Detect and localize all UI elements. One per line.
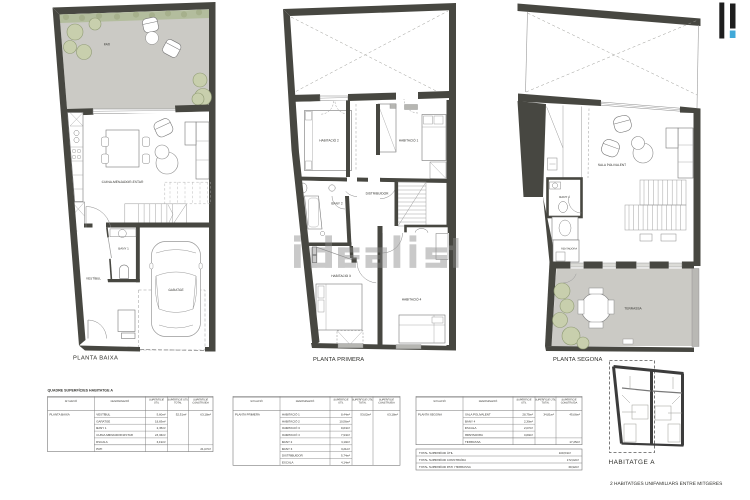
svg-text:172,02m²: 172,02m² [567,458,579,462]
svg-text:PLANTA SEGONA: PLANTA SEGONA [418,413,442,417]
svg-text:HABITACIÓ 1: HABITACIÓ 1 [282,413,300,417]
svg-text:63,18m²: 63,18m² [200,413,211,417]
svg-text:DISTRIBUIDOR: DISTRIBUIDOR [366,192,390,196]
svg-text:5,74m²: 5,74m² [341,454,350,458]
svg-text:BANY 4: BANY 4 [465,419,476,423]
svg-text:DENOMINACIÓ: DENOMINACIÓ [479,399,498,403]
svg-text:BANY 1: BANY 1 [118,247,129,251]
svg-text:ESCALA: ESCALA [465,426,476,430]
svg-text:52,51m²: 52,51m² [176,413,187,417]
svg-text:ÚTIL: ÚTIL [154,401,160,405]
svg-text:SITUACIÓ: SITUACIÓ [250,399,262,403]
svg-text:RENTADORA: RENTADORA [561,248,577,251]
svg-text:HABITACIÓ 2: HABITACIÓ 2 [282,419,300,423]
svg-text:45,66m²: 45,66m² [569,413,580,417]
svg-text:CONSTRUÏDA: CONSTRUÏDA [561,401,578,405]
svg-text:18,65m²: 18,65m² [155,419,166,423]
svg-text:BANY 2: BANY 2 [331,202,343,206]
svg-text:63,18m²: 63,18m² [387,413,398,417]
svg-text:TOTAL SUPERFÍCIE CONSTRUÏDA: TOTAL SUPERFÍCIE CONSTRUÏDA [419,458,466,462]
svg-text:DISTRIBUIDOR: DISTRIBUIDOR [282,454,303,458]
svg-text:CUINA-MENJADOR-ESTAR: CUINA-MENJADOR-ESTAR [102,180,144,184]
svg-text:24,33m²: 24,33m² [155,433,166,437]
svg-text:SALA POLIVALENT: SALA POLIVALENT [598,163,626,167]
svg-text:HABITACIÓ 2: HABITACIÓ 2 [319,139,339,143]
svg-text:DENOMINACIÓ: DENOMINACIÓ [296,399,315,403]
svg-text:21,67m²: 21,67m² [200,447,211,451]
svg-text:34,81m²: 34,81m² [543,413,554,417]
svg-text:BANY 1: BANY 1 [96,426,107,430]
svg-text:CONSTRUÏDA: CONSTRUÏDA [378,401,395,405]
svg-text:2,30m²: 2,30m² [524,419,533,423]
svg-text:8,84m²: 8,84m² [341,426,350,430]
svg-text:VESTÍBUL: VESTÍBUL [86,276,101,280]
svg-text:GARATGE: GARATGE [168,288,183,292]
svg-text:38,92m²: 38,92m² [568,465,579,469]
svg-text:GARATGE: GARATGE [96,419,110,423]
svg-text:DENOMINACIÓ: DENOMINACIÓ [111,399,130,403]
svg-text:10,56m²: 10,56m² [339,419,350,423]
svg-text:3,21m²: 3,21m² [341,447,350,451]
svg-text:SALA POLIVALENT: SALA POLIVALENT [465,413,491,417]
svg-text:TOTAL SUPERFÍCIE PATI I TERRAS: TOTAL SUPERFÍCIE PATI I TERRASSA [419,465,471,469]
svg-text:PLANTA BAIXA: PLANTA BAIXA [73,356,118,362]
svg-text:PLANTA BAIXA: PLANTA BAIXA [50,413,70,417]
svg-text:4,14m²: 4,14m² [341,460,350,464]
svg-text:HABITACIÓ 3: HABITACIÓ 3 [331,274,351,278]
svg-text:5,60m²: 5,60m² [157,413,166,417]
svg-text:108,54m²: 108,54m² [559,451,571,455]
svg-text:BANY 2: BANY 2 [282,440,293,444]
svg-text:2,45m²: 2,45m² [157,426,166,430]
svg-text:CUINA-MENJADOR-ESTAR: CUINA-MENJADOR-ESTAR [96,433,133,437]
svg-text:17,25m²: 17,25m² [569,440,580,444]
svg-text:ESCALA: ESCALA [282,460,293,464]
svg-text:HABITACIÓ 3: HABITACIÓ 3 [282,426,300,430]
svg-text:HABITACIÓ 4: HABITACIÓ 4 [402,298,422,302]
svg-text:TOTAL: TOTAL [542,402,550,405]
svg-text:HABITATGE A: HABITATGE A [609,459,656,466]
svg-text:ESCALA: ESCALA [96,440,107,444]
svg-text:PLANTA PRIMERA: PLANTA PRIMERA [313,357,364,363]
svg-text:PLANTA PRIMERA: PLANTA PRIMERA [235,413,260,417]
svg-text:HABITACIÓ 1: HABITACIÓ 1 [399,139,419,143]
svg-text:2,07m²: 2,07m² [524,426,533,430]
svg-text:ÚTIL: ÚTIL [338,401,344,405]
svg-text:7,94m²: 7,94m² [341,433,350,437]
svg-text:ÚTIL: ÚTIL [521,401,527,405]
svg-text:TOTAL: TOTAL [359,402,367,405]
svg-text:0,89m²: 0,89m² [524,433,533,437]
svg-text:VESTÍBUL: VESTÍBUL [96,413,110,417]
svg-text:TOTAL SUPERFÍCIE ÚTIL: TOTAL SUPERFÍCIE ÚTIL [419,451,454,455]
svg-text:28,75m²: 28,75m² [522,413,533,417]
svg-text:QUADRE SUPERFÍCIES HABITATGE A: QUADRE SUPERFÍCIES HABITATGE A [48,388,114,393]
svg-text:TERRASSA: TERRASSA [465,440,481,444]
svg-text:PATI: PATI [96,447,102,451]
svg-text:PATI: PATI [104,43,111,47]
svg-text:8,44m²: 8,44m² [341,413,350,417]
svg-text:SITUACIÓ: SITUACIÓ [65,399,77,403]
svg-text:3,19m²: 3,19m² [157,440,166,444]
svg-text:PLANTA SEGONA: PLANTA SEGONA [553,356,603,363]
svg-text:CONSTRUÏDA: CONSTRUÏDA [192,401,209,405]
svg-text:53,02m²: 53,02m² [360,413,371,417]
svg-text:BANY 3: BANY 3 [282,447,293,451]
svg-text:2 HABITATGES UNIFAMILIARS ENTR: 2 HABITATGES UNIFAMILIARS ENTRE MITGERES [610,481,722,487]
svg-text:RENTADORA: RENTADORA [465,433,483,437]
svg-text:4,19m²: 4,19m² [341,440,350,444]
svg-text:HABITACIÓ 4: HABITACIÓ 4 [282,433,300,437]
svg-text:SITUACIÓ: SITUACIÓ [433,399,445,403]
svg-text:TERRASSA: TERRASSA [624,307,642,311]
svg-text:TOTAL: TOTAL [174,402,182,405]
